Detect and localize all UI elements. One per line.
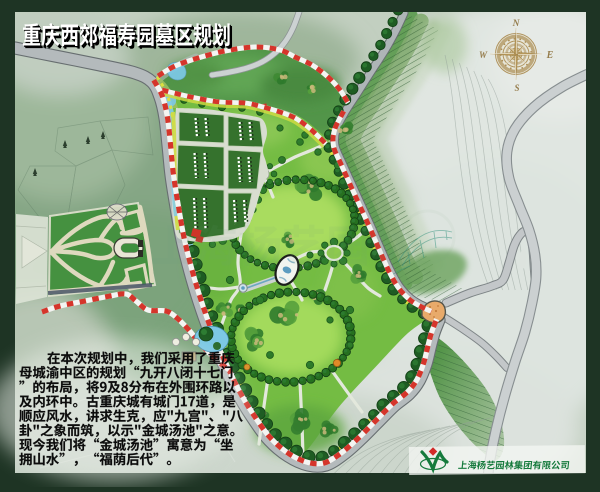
- svg-text:N: N: [512, 19, 521, 29]
- svg-text:S: S: [514, 83, 519, 93]
- svg-text:W: W: [479, 50, 488, 60]
- svg-text:E: E: [546, 50, 554, 61]
